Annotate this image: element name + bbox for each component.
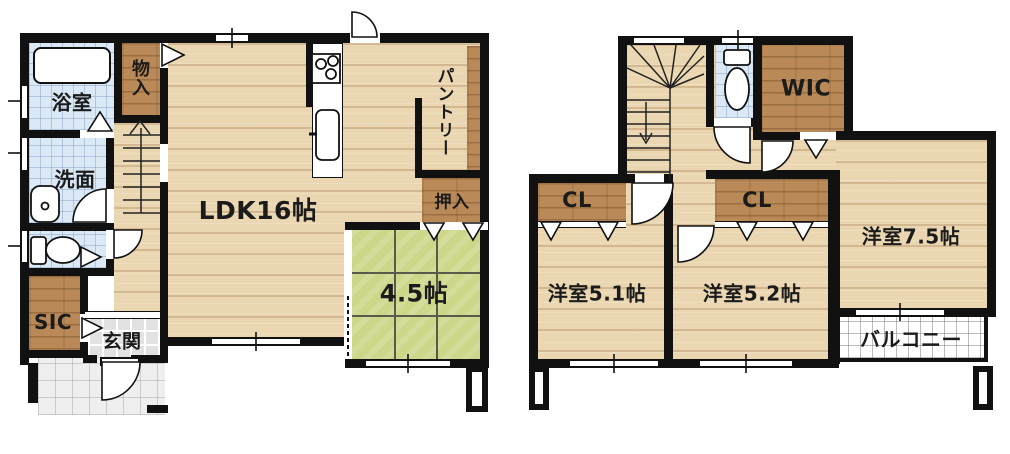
- futon-closet-door-marker: [463, 223, 483, 240]
- room-label-entrance: 玄関: [102, 327, 141, 354]
- room-label-bedroom-c: 洋室7.5帖: [862, 221, 960, 250]
- closet-a-door-marker: [541, 222, 561, 240]
- closet-b-door-marker: [793, 222, 813, 240]
- room-label-pantry: パントリー: [432, 67, 457, 157]
- stairs-floor1: [123, 121, 160, 213]
- entrance-door: [102, 362, 140, 400]
- room-label-washroom: 洗面: [55, 164, 96, 193]
- room-label-futon-closet: 押入: [435, 188, 470, 213]
- toilet1-bowl: [46, 237, 80, 263]
- sic-door-marker: [82, 318, 102, 338]
- room-label-bedroom-a: 洋室5.1帖: [548, 278, 646, 307]
- toilet2-bowl: [725, 68, 749, 110]
- toilet2-tank: [724, 50, 750, 65]
- floor-plan: 浴室 物入 洗面 LDK16帖 パントリー 押入 4.5帖 SIC 玄関 WIC…: [0, 0, 1010, 454]
- kitchen-sink: [316, 110, 339, 160]
- stove-burner: [316, 59, 326, 69]
- room-label-sic: SIC: [34, 310, 72, 334]
- washbasin-drain: [42, 203, 49, 210]
- room-label-tatami: 4.5帖: [380, 274, 449, 309]
- washroom-door: [73, 189, 106, 222]
- bedroom-b-door: [678, 226, 714, 262]
- ldk-exterior-door: [352, 12, 377, 37]
- stairs-up-arrow: [130, 121, 150, 134]
- fixtures-floor2: [724, 50, 750, 110]
- room-label-closet-b: CL: [742, 188, 772, 212]
- room-label-bedroom-b: 洋室5.2帖: [703, 278, 801, 307]
- wic-door-marker: [805, 140, 827, 158]
- stairs-floor2: [627, 45, 704, 181]
- storage-door-marker: [162, 44, 184, 66]
- bedroom-a-door: [632, 183, 673, 224]
- room-label-storage: 物入: [126, 59, 152, 97]
- toilet2-door: [714, 127, 750, 163]
- closet-b-door-marker: [737, 222, 757, 240]
- room-label-wic: WIC: [781, 77, 831, 102]
- stove-burner: [326, 69, 336, 79]
- closet-a-door-marker: [598, 222, 618, 240]
- stove-burner: [328, 56, 338, 66]
- futon-closet-door-marker: [424, 223, 444, 240]
- room-label-bathroom: 浴室: [52, 87, 93, 116]
- fixtures-floor1: [31, 54, 340, 264]
- toilet1-tank: [31, 237, 46, 264]
- toilet1-door-marker: [81, 247, 101, 267]
- room-label-closet-a: CL: [562, 188, 592, 212]
- room-label-ldk: LDK16帖: [199, 191, 318, 227]
- bedroom-c-door: [762, 141, 793, 172]
- toilet1-door: [114, 230, 142, 258]
- room-label-balcony: バルコニー: [860, 324, 962, 353]
